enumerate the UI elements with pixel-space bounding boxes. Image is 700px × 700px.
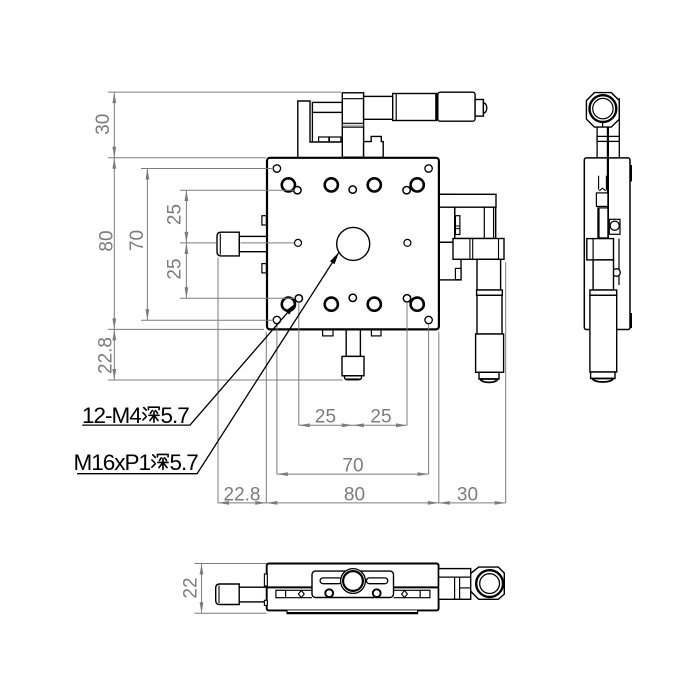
svg-text:22.8: 22.8 xyxy=(224,485,261,506)
svg-text:22: 22 xyxy=(181,577,202,598)
svg-text:M16xP1: M16xP1 xyxy=(74,450,151,475)
svg-text:25: 25 xyxy=(165,258,186,279)
svg-text:30: 30 xyxy=(93,114,114,135)
svg-text:5.7: 5.7 xyxy=(161,403,190,428)
svg-text:80: 80 xyxy=(97,230,118,251)
svg-text:25: 25 xyxy=(315,407,336,428)
svg-text:80: 80 xyxy=(344,485,365,506)
svg-text:70: 70 xyxy=(127,230,148,251)
svg-text:70: 70 xyxy=(342,456,363,477)
svg-text:25: 25 xyxy=(370,407,391,428)
svg-text:22.8: 22.8 xyxy=(96,337,117,374)
svg-text:30: 30 xyxy=(457,485,478,506)
svg-text:5.7: 5.7 xyxy=(170,450,199,475)
svg-text:12-M4: 12-M4 xyxy=(82,403,141,428)
svg-text:25: 25 xyxy=(165,204,186,225)
